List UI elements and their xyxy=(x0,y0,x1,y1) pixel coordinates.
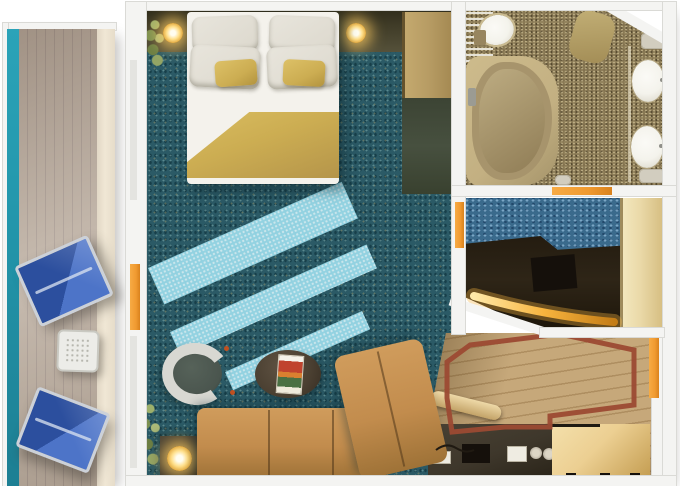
bathroom-diagonal-wall xyxy=(606,5,668,41)
overlay-graphics xyxy=(0,0,680,486)
balcony-door-marker xyxy=(130,264,140,330)
floorplan-stage xyxy=(0,0,680,486)
dressing-bottom-wall xyxy=(540,328,664,337)
bedroom-divider-wall xyxy=(452,2,465,334)
right-wall xyxy=(663,2,676,486)
bottom-wall xyxy=(126,476,676,486)
top-wall xyxy=(126,2,676,10)
entry-door-marker xyxy=(649,338,659,398)
counter-cable xyxy=(436,445,474,451)
left-wall-window-upper xyxy=(130,60,137,200)
rug-border-inlay xyxy=(447,334,634,432)
left-wall-window-lower xyxy=(130,336,137,468)
bathroom-door-marker xyxy=(552,187,612,195)
dressing-door-marker xyxy=(455,202,464,248)
